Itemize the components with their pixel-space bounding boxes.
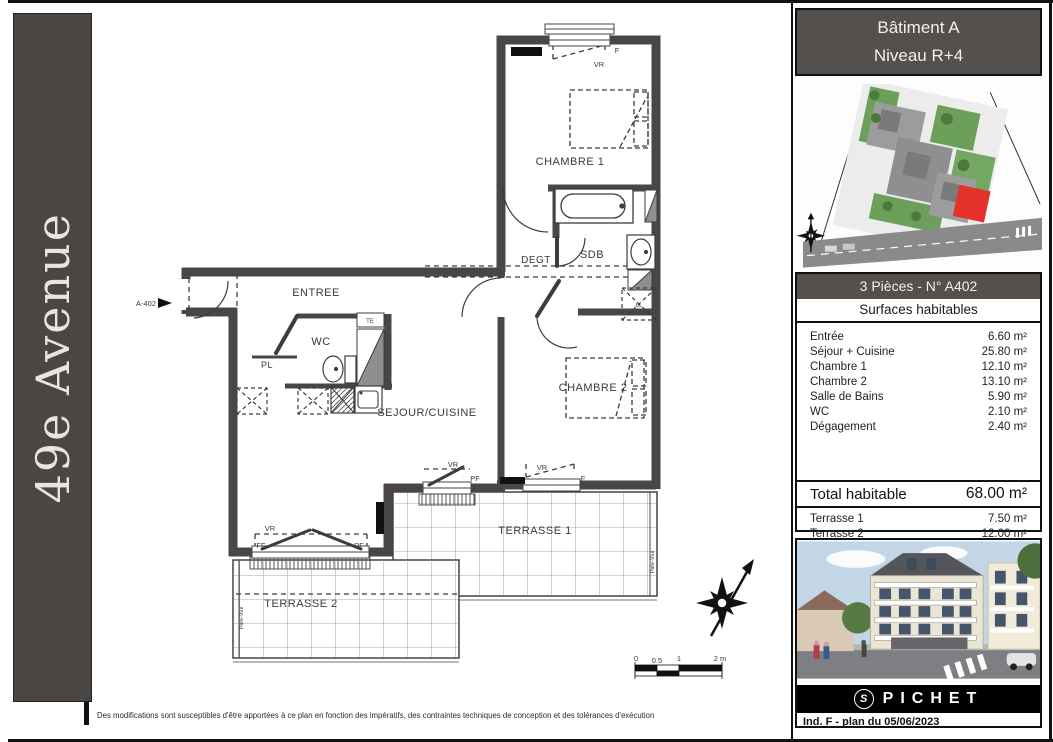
scale-1: 1	[677, 654, 681, 663]
plan-revision: Ind. F - plan du 05/06/2023	[797, 713, 1040, 731]
row-value: 25.80 m²	[982, 346, 1027, 358]
panel-divider	[791, 0, 793, 742]
table-row: Dégagement2.40 m²	[797, 419, 1040, 434]
label-vr-top: VR	[594, 60, 605, 69]
label-f-ch2: F	[581, 474, 586, 483]
disclaimer-text: Des modifications sont susceptibles d'êt…	[97, 711, 757, 720]
residence-banner: 49e Avenue	[13, 13, 92, 702]
table-row: Salle de Bains5.90 m²	[797, 389, 1040, 404]
table-row: Entrée6.60 m²	[797, 329, 1040, 344]
scale-2m: 2 m	[714, 654, 727, 663]
label-pare-vue-t1: Pare-Vue	[650, 550, 656, 573]
table-row: WC2.10 m²	[797, 404, 1040, 419]
building-header: Bâtiment A Niveau R+4	[795, 8, 1042, 76]
unit-number: A-402	[136, 299, 156, 308]
site-plan-drawing	[795, 84, 1042, 268]
surfaces-table: 3 Pièces - N° A402 Surfaces habitables E…	[795, 272, 1042, 532]
total-value: 68.00 m²	[966, 485, 1027, 503]
floor-plan-drawing: CHAMBRE 1 SDB DEGT ENTREE WC PL SEJOUR/C…	[95, 8, 785, 703]
scale-bar: 0 0.5 1 2 m	[634, 654, 726, 679]
terrace-2	[233, 560, 459, 662]
row-value: 6.60 m²	[988, 331, 1027, 343]
row-value: 2.10 m²	[988, 406, 1027, 418]
label-entree: ENTREE	[292, 287, 340, 299]
label-vr-south: VR	[265, 524, 276, 533]
label-chambre1: CHAMBRE 1	[536, 156, 605, 168]
row-value: 5.90 m²	[988, 391, 1027, 403]
brand-name: PICHET	[883, 690, 984, 708]
scale-05: 0.5	[652, 656, 662, 665]
row-label: Chambre 2	[810, 376, 867, 388]
row-label: Séjour + Cuisine	[810, 346, 895, 358]
unit-header: 3 Pièces - N° A402	[797, 274, 1040, 299]
label-wc: WC	[311, 336, 330, 348]
row-value: 7.50 m²	[988, 513, 1027, 525]
label-pf1: PF	[470, 474, 480, 483]
residence-name: 49e Avenue	[26, 212, 80, 503]
label-te: TE	[366, 319, 374, 325]
label-ll: LL	[636, 303, 643, 309]
building-name: Bâtiment A	[877, 14, 959, 42]
building-photo	[797, 540, 1040, 680]
label-terrasse1: TERRASSE 1	[498, 525, 571, 537]
table-row: Chambre 213.10 m²	[797, 374, 1040, 389]
scale-0: 0	[634, 654, 638, 663]
highlighted-unit	[953, 185, 991, 223]
radiators	[376, 47, 542, 534]
label-pare-vue-t2: Pare-Vue	[239, 606, 245, 629]
total-label: Total habitable	[810, 486, 907, 503]
bathtub	[555, 189, 633, 223]
floor-plan-page: 49e Avenue	[0, 0, 1053, 742]
washbasin	[627, 235, 655, 269]
page-border-top	[8, 0, 1053, 3]
row-label: Salle de Bains	[810, 391, 884, 403]
bed-chambre1	[570, 90, 648, 148]
label-degt: DEGT	[521, 255, 551, 266]
brand-logo-icon: S	[854, 689, 874, 709]
compass-rose	[696, 559, 754, 636]
label-sejour: SEJOUR/CUISINE	[377, 407, 476, 419]
table-row: Chambre 112.10 m²	[797, 359, 1040, 374]
row-value: 12.10 m²	[982, 361, 1027, 373]
label-ff-south: FF	[256, 541, 266, 550]
fold-mark	[84, 701, 89, 725]
building-level: Niveau R+4	[874, 42, 963, 70]
label-pl: PL	[261, 360, 273, 370]
row-label: Entrée	[810, 331, 844, 343]
label-f-top: F	[615, 46, 620, 55]
label-vr-pf1: VR	[448, 460, 459, 469]
toilet	[323, 356, 356, 383]
row-label: Dégagement	[810, 421, 876, 433]
label-sdb: SDB	[580, 249, 604, 261]
label-chambre2: CHAMBRE 2	[559, 382, 628, 394]
row-label: Chambre 1	[810, 361, 867, 373]
table-row: Terrasse 17.50 m²	[797, 511, 1040, 526]
row-value: 2.40 m²	[988, 421, 1027, 433]
row-label: WC	[810, 406, 829, 418]
surfaces-title: Surfaces habitables	[797, 299, 1040, 323]
label-pf-south: PF	[354, 541, 364, 550]
unit-pointer: A-402	[136, 298, 172, 308]
label-terrasse2: TERRASSE 2	[264, 598, 337, 610]
site-plan	[795, 84, 1042, 268]
page-border-right	[1049, 0, 1052, 742]
building-photo-box: S PICHET Ind. F - plan du 05/06/2023	[795, 538, 1042, 728]
brand-bar: S PICHET	[797, 685, 1040, 713]
row-value: 13.10 m²	[982, 376, 1027, 388]
kitchen-units	[237, 386, 382, 414]
table-row: Séjour + Cuisine25.80 m²	[797, 344, 1040, 359]
total-row: Total habitable 68.00 m²	[797, 480, 1040, 508]
row-label: Terrasse 1	[810, 513, 864, 525]
label-vr-ch2: VR	[537, 463, 548, 472]
